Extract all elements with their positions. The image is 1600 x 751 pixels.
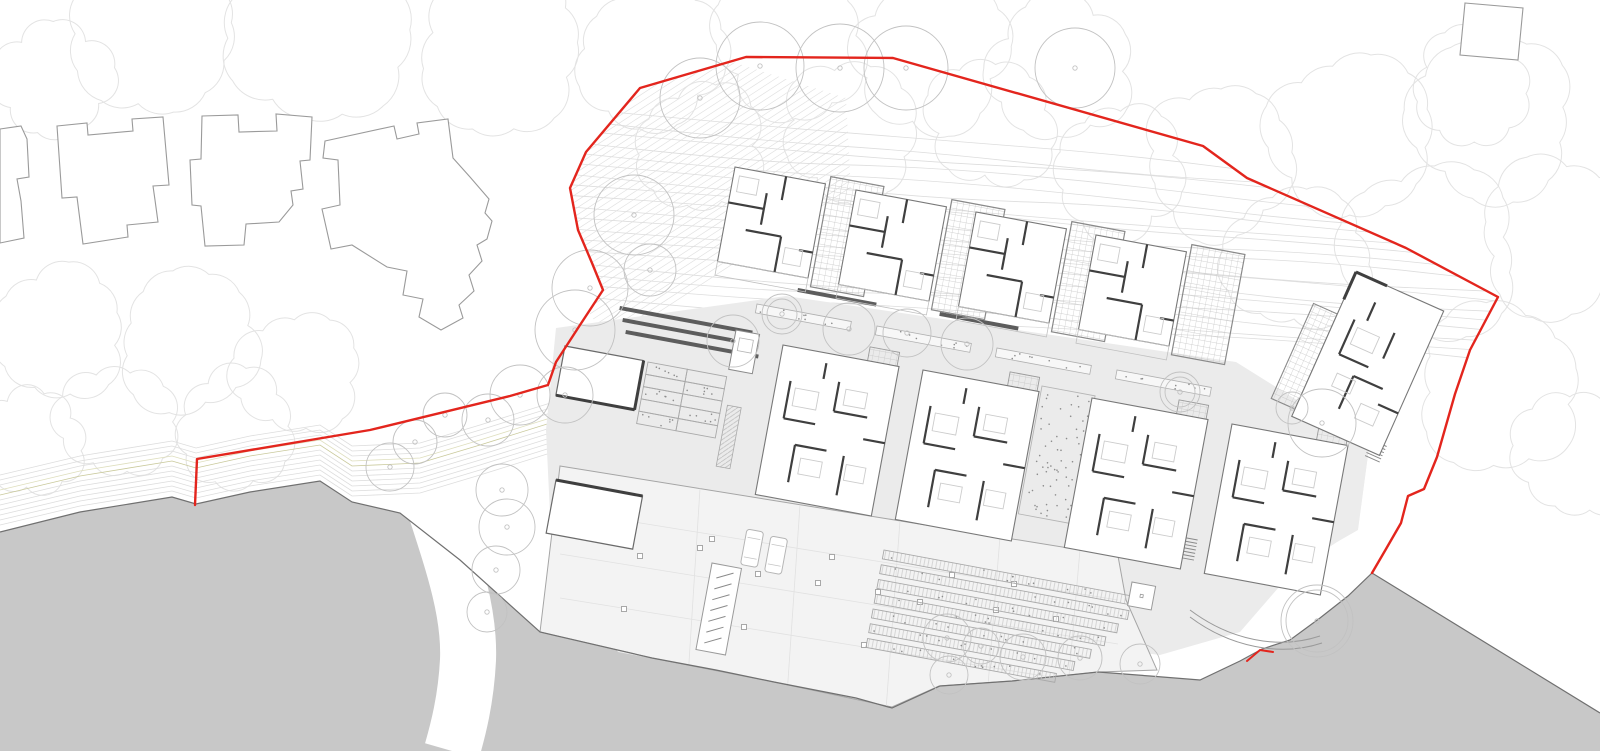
- structural-column: [638, 554, 643, 559]
- structural-column: [950, 573, 955, 578]
- structural-column: [876, 590, 881, 595]
- structural-column: [756, 572, 761, 577]
- structural-column: [698, 546, 703, 551]
- site-plan-drawing: [0, 0, 1600, 751]
- unit-outline: [839, 190, 947, 301]
- structural-column: [710, 537, 715, 542]
- structural-column: [816, 581, 821, 586]
- garden-hut: [1128, 582, 1156, 610]
- site-plan-figure: [0, 0, 1600, 751]
- existing-square-building: [1460, 3, 1523, 60]
- unit-outline: [959, 212, 1067, 323]
- hut-outline: [1128, 582, 1156, 610]
- unit-outline: [1079, 235, 1187, 346]
- structural-column: [622, 607, 627, 612]
- structural-column: [830, 555, 835, 560]
- structural-column: [742, 625, 747, 630]
- unit-outline: [718, 167, 826, 278]
